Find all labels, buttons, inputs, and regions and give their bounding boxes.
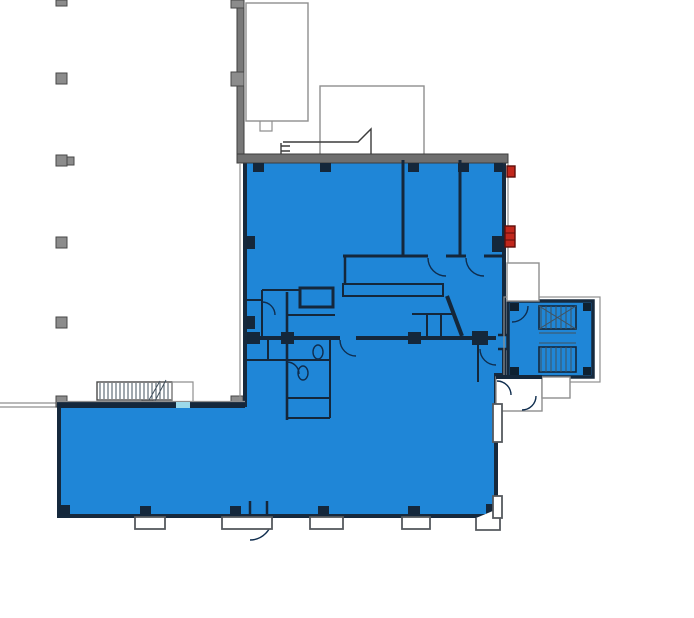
floor-plan-drawing [0,0,694,618]
neighbor-fixture-glyph [281,143,290,155]
grid-column [56,0,67,6]
window-frame [493,404,502,442]
grid-column [56,317,67,328]
grid-column [56,155,67,166]
stair-tower-group [504,297,600,382]
fire-marker-icon [505,226,515,247]
structural-grid-columns [56,0,243,407]
window-bay [310,517,343,529]
neighbor-room-outline [246,3,308,121]
wall-column [231,0,244,8]
entrance-door-highlight [176,402,190,408]
top-facade-wall [237,154,508,163]
window-bay [222,517,272,529]
window-bay [402,517,430,529]
fire-equipment-markers [505,166,515,247]
window-frame [493,496,502,518]
grid-column [56,73,67,84]
fire-marker-icon [507,166,515,177]
neighbor-wall-line [0,403,57,407]
floor-plan-canvas [0,0,694,618]
wall-column [231,72,244,86]
neighbor-room-outline [320,86,424,155]
vestibule-annex [542,377,570,398]
grid-column [56,237,67,248]
neighbor-room-notch [260,121,272,131]
external-staircase [97,380,193,404]
grid-column-attachment [67,157,74,165]
shaft-room-outline [507,263,539,301]
stair-landing-outline [172,382,193,404]
window-bay [135,517,165,529]
